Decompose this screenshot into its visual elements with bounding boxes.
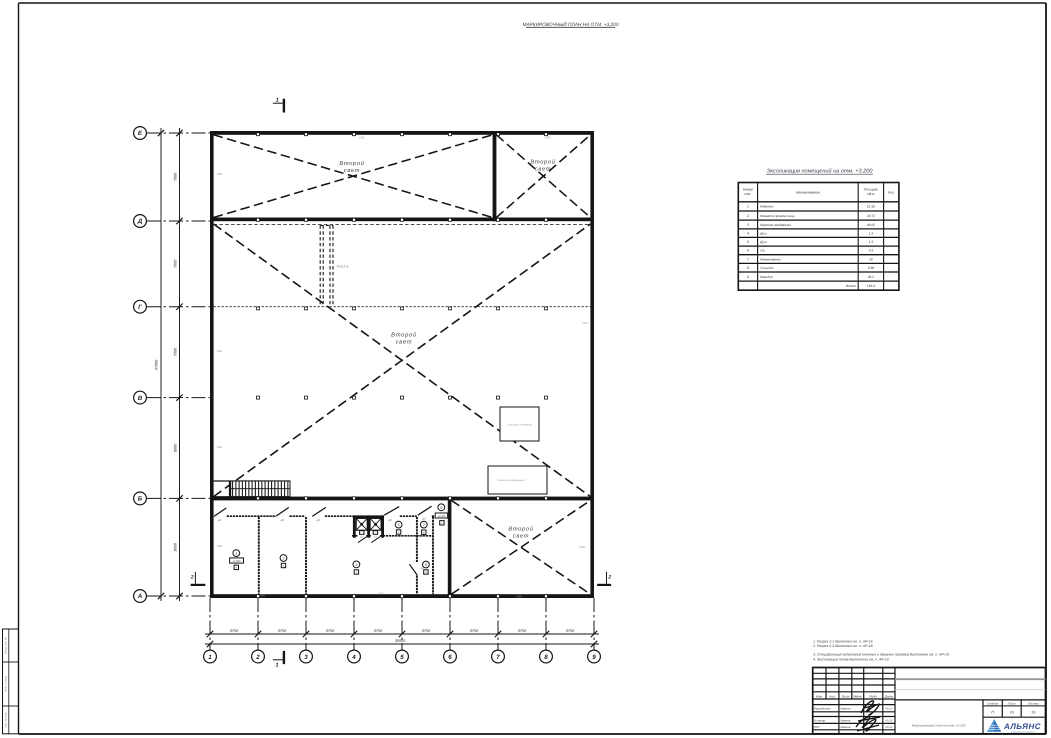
svg-text:48.05: 48.05 <box>867 223 875 227</box>
svg-text:4: 4 <box>351 654 356 661</box>
svg-text:строительная компания: строительная компания <box>1011 730 1036 733</box>
svg-text:6: 6 <box>747 249 749 253</box>
svg-text:Иванов: Иванов <box>841 725 851 729</box>
svg-text:Коридор: Коридор <box>760 275 773 279</box>
svg-text:Комната приема пищи: Комната приема пищи <box>760 214 795 218</box>
svg-text:3.9: 3.9 <box>869 249 874 253</box>
svg-text:Д2: Д2 <box>387 518 392 522</box>
svg-text:Маркировочный план на отм. +3.: Маркировочный план на отм. +3.200 <box>912 724 966 728</box>
svg-text:1: 1 <box>208 654 212 661</box>
svg-text:ОК5: ОК5 <box>217 172 223 176</box>
svg-text:Иванов: Иванов <box>841 707 851 711</box>
svg-text:ОК9: ОК9 <box>582 321 588 325</box>
svg-text:3750: 3750 <box>566 629 575 633</box>
svg-text:23.72: 23.72 <box>866 214 875 218</box>
svg-text:16: 16 <box>869 257 873 261</box>
svg-text:Взам. инв. №: Взам. инв. № <box>5 637 8 653</box>
svg-text:С/у: С/у <box>760 249 765 253</box>
svg-text:Подп. и дата: Подп. и дата <box>5 675 8 692</box>
svg-text:Кол.: Кол. <box>888 191 895 195</box>
svg-text:+3.200: +3.200 <box>437 515 446 518</box>
svg-text:7000: 7000 <box>174 259 178 268</box>
svg-text:1: 1 <box>747 205 749 209</box>
svg-text:2: 2 <box>190 575 194 581</box>
svg-text:Номер: Номер <box>743 188 753 192</box>
svg-text:ГИП: ГИП <box>814 725 821 729</box>
svg-text:Д2: Д2 <box>316 518 321 522</box>
svg-text:Н.контр.: Н.контр. <box>814 718 826 722</box>
svg-text:6: 6 <box>398 523 400 527</box>
svg-text:8: 8 <box>425 563 427 567</box>
svg-text:37000: 37000 <box>155 359 159 370</box>
svg-text:№док.: №док. <box>853 695 862 699</box>
svg-text:h=3.2 м: h=3.2 м <box>337 264 350 268</box>
svg-text:Д4: Д4 <box>373 535 378 538</box>
svg-text:1: 1 <box>276 98 279 104</box>
svg-text:Д4: Д4 <box>359 535 364 538</box>
svg-text:3750: 3750 <box>278 629 287 633</box>
svg-text:09.13: 09.13 <box>886 719 893 722</box>
svg-text:1: 1 <box>235 552 237 556</box>
svg-text:8000: 8000 <box>174 443 178 452</box>
svg-text:Итого: Итого <box>846 284 856 288</box>
svg-text:Второй: Второй <box>391 332 417 339</box>
svg-text:2: 2 <box>607 574 611 580</box>
svg-text:3750: 3750 <box>470 629 479 633</box>
svg-text:21.55: 21.55 <box>866 205 875 209</box>
svg-text:2. Разрез 2-2 Выполнен см. л.: 2. Разрез 2-2 Выполнен см. л. АР-18. <box>812 644 873 648</box>
svg-text:Инвентарная: Инвентарная <box>760 257 781 261</box>
svg-text:2: 2 <box>255 654 260 661</box>
svg-text:ОК7: ОК7 <box>378 592 384 596</box>
svg-text:Экспликация помещений на отм.: Экспликация помещений на отм. +3.200 <box>767 168 874 175</box>
svg-text:Второй: Второй <box>530 159 555 166</box>
svg-text:9: 9 <box>440 506 442 510</box>
svg-text:Стадия: Стадия <box>987 701 998 705</box>
svg-text:Кабинет: Кабинет <box>760 205 774 209</box>
svg-text:5: 5 <box>400 654 404 661</box>
svg-text:Душ: Душ <box>759 240 767 244</box>
svg-text:30000: 30000 <box>395 639 406 643</box>
svg-text:Д: Д <box>137 218 143 225</box>
svg-text:5.88: 5.88 <box>868 266 874 270</box>
svg-text:ОК9: ОК9 <box>579 545 585 549</box>
svg-text:свет: свет <box>344 168 360 174</box>
svg-text:Мужская раздевалка: Мужская раздевалка <box>760 223 791 227</box>
svg-text:пом.: пом. <box>745 192 752 196</box>
svg-text:ОК3: ОК3 <box>545 136 551 140</box>
svg-text:5: 5 <box>747 240 749 244</box>
svg-text:АЛЬЯНС: АЛЬЯНС <box>1003 722 1041 731</box>
svg-text:7: 7 <box>496 654 500 661</box>
svg-text:Инв. № подл.: Инв. № подл. <box>5 711 8 727</box>
svg-text:ОК8: ОК8 <box>516 595 522 599</box>
svg-text:3: 3 <box>355 563 357 567</box>
svg-text:П: П <box>991 711 994 715</box>
svg-text:3. Спецификация заполнения око: 3. Спецификация заполнения оконных и две… <box>813 652 950 656</box>
svg-text:Душ: Душ <box>759 231 767 235</box>
svg-text:Разработал: Разработал <box>814 707 831 711</box>
svg-text:1.5: 1.5 <box>869 231 874 235</box>
svg-text:Наименование: Наименование <box>796 191 820 195</box>
svg-text:Сушилка: Сушилка <box>760 266 774 270</box>
svg-text:свет: свет <box>396 340 413 346</box>
svg-text:В: В <box>138 395 143 402</box>
svg-text:4: 4 <box>747 231 749 235</box>
svg-text:8000: 8000 <box>174 542 178 551</box>
svg-text:9: 9 <box>592 654 596 661</box>
svg-text:Б: Б <box>138 496 143 503</box>
svg-text:ОК6: ОК6 <box>259 594 265 598</box>
svg-text:09.13: 09.13 <box>886 708 893 711</box>
svg-text:свет: свет <box>513 533 529 539</box>
svg-text:Листов: Листов <box>1027 701 1039 705</box>
svg-text:8: 8 <box>544 654 548 661</box>
svg-text:Подшивка 2-этажная: Подшивка 2-этажная <box>507 424 532 427</box>
svg-text:3750: 3750 <box>374 629 383 633</box>
svg-text:1.5: 1.5 <box>869 240 874 244</box>
svg-text:Лист: Лист <box>1007 701 1016 705</box>
svg-text:3: 3 <box>747 223 749 227</box>
svg-text:1. Разрез 1-1 Выполнен см. л.: 1. Разрез 1-1 Выполнен см. л. АР-18. <box>813 639 873 643</box>
svg-text:ОК5: ОК5 <box>217 544 223 548</box>
svg-text:9: 9 <box>747 275 749 279</box>
svg-text:3: 3 <box>304 654 308 661</box>
svg-text:3750: 3750 <box>230 629 239 633</box>
svg-text:+3.200: +3.200 <box>232 560 241 563</box>
svg-text:Иванов: Иванов <box>841 718 851 722</box>
svg-text:Д2: Д2 <box>280 518 285 522</box>
svg-text:156.3: 156.3 <box>867 284 875 288</box>
svg-text:ОК5: ОК5 <box>217 445 223 449</box>
svg-text:свет: свет <box>535 166 551 172</box>
svg-text:7000: 7000 <box>174 172 178 181</box>
svg-text:6: 6 <box>448 654 452 661</box>
svg-text:3750: 3750 <box>518 629 527 633</box>
svg-text:1: 1 <box>276 662 279 668</box>
svg-text:09.13: 09.13 <box>886 726 893 729</box>
svg-text:2: 2 <box>282 557 285 561</box>
svg-text:4. Экспликация полов Выполнена: 4. Экспликация полов Выполнена см. л. АР… <box>813 657 890 661</box>
svg-text:Второй: Второй <box>339 160 364 167</box>
svg-text:ОК1: ОК1 <box>359 136 365 140</box>
svg-text:Изм.: Изм. <box>816 695 823 699</box>
svg-text:8: 8 <box>747 266 749 270</box>
svg-text:Д2: Д2 <box>421 517 426 521</box>
svg-text:ОК5: ОК5 <box>217 349 223 353</box>
svg-text:Дата: Дата <box>884 695 893 699</box>
svg-text:3750: 3750 <box>326 629 335 633</box>
svg-text:Д2: Д2 <box>217 518 222 522</box>
svg-text:3750: 3750 <box>422 629 431 633</box>
svg-text:Площадь: Площадь <box>864 188 879 192</box>
svg-text:кВ.м: кВ.м <box>867 192 875 196</box>
svg-text:МАРКИРОВОЧНЫЙ ПЛАН НА ОТМ. +3.: МАРКИРОВОЧНЫЙ ПЛАН НА ОТМ. +3.200 <box>523 21 619 28</box>
svg-text:7000: 7000 <box>174 347 178 356</box>
svg-text:Второй: Второй <box>508 526 533 533</box>
svg-text:34.2: 34.2 <box>868 275 874 279</box>
svg-text:Гибкая платформенная: Гибкая платформенная <box>497 479 525 482</box>
svg-text:2: 2 <box>746 214 749 218</box>
svg-text:Кол.: Кол. <box>829 695 835 699</box>
svg-text:Лист: Лист <box>840 695 849 699</box>
svg-text:А: А <box>137 593 143 600</box>
svg-text:Подп.: Подп. <box>869 695 877 699</box>
